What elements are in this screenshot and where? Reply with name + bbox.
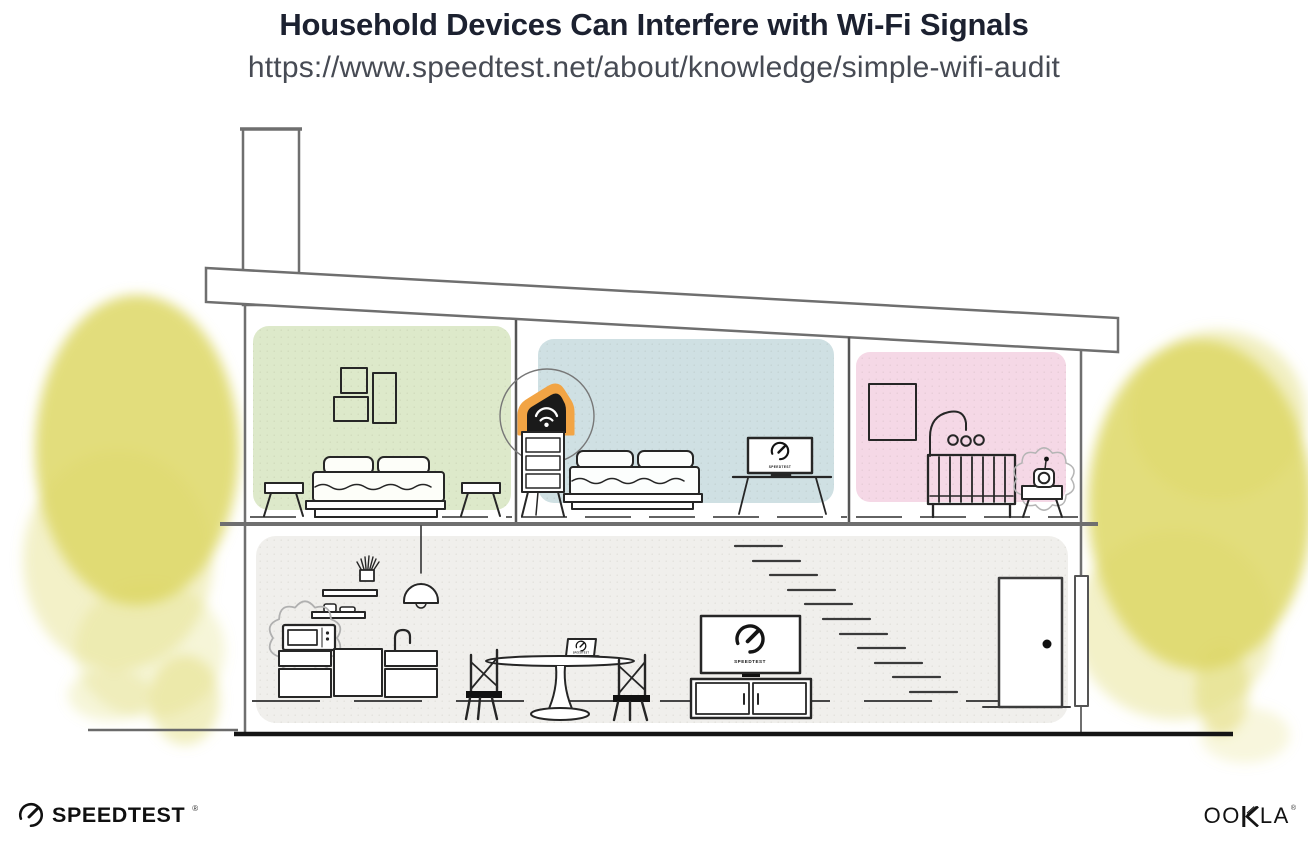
- bed: [564, 451, 702, 509]
- bedroom-monitor-label: SPEEDTEST: [769, 465, 792, 469]
- house-cross-section-illustration: SPEEDTEST: [0, 0, 1308, 861]
- page-title: Household Devices Can Interfere with Wi-…: [0, 7, 1308, 43]
- microwave: [283, 625, 335, 650]
- speedtest-wordmark: SPEEDTEST: [52, 803, 185, 828]
- tv-screen-label: SPEEDTEST: [734, 659, 766, 664]
- source-url: https://www.speedtest.net/about/knowledg…: [0, 51, 1308, 85]
- registered-trademark: ®: [1291, 805, 1296, 812]
- media-console: [691, 679, 811, 718]
- registered-trademark: ®: [192, 804, 198, 813]
- ookla-logo: OO LA ®: [1204, 803, 1295, 829]
- ookla-wordmark-right: LA: [1260, 803, 1290, 829]
- tv-stand: [742, 674, 760, 677]
- downspout: [1075, 576, 1088, 706]
- speedtest-logo: SPEEDTEST ®: [17, 801, 198, 829]
- tv-area: SPEEDTEST: [691, 616, 811, 718]
- foliage-right: [1075, 330, 1308, 763]
- speedtest-gauge-icon: [17, 801, 45, 829]
- dining-laptop-label: SPEEDTEST: [573, 653, 590, 655]
- wall-shelf: [323, 590, 377, 596]
- wall-shelf: [312, 612, 365, 618]
- foliage-left: [23, 295, 239, 745]
- infographic-page: SPEEDTEST: [0, 0, 1308, 861]
- ookla-k-glyph: [1242, 806, 1259, 827]
- ookla-wordmark-left: OO: [1204, 803, 1241, 829]
- door-knob: [1043, 640, 1052, 649]
